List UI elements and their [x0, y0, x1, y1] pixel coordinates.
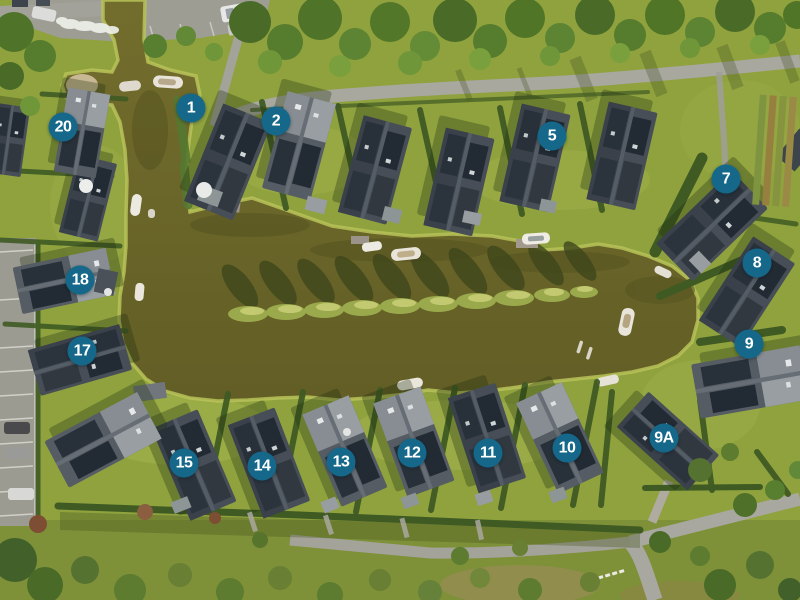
lot-marker-20[interactable]: 20	[49, 113, 78, 142]
lot-marker-14[interactable]: 14	[248, 452, 277, 481]
lot-marker-17[interactable]: 17	[68, 337, 97, 366]
lot-marker-18[interactable]: 18	[66, 266, 95, 295]
lot-marker-7[interactable]: 7	[712, 165, 741, 194]
lot-marker-15[interactable]: 15	[170, 449, 199, 478]
lot-marker-9A[interactable]: 9A	[650, 424, 679, 453]
lot-marker-9[interactable]: 9	[735, 330, 764, 359]
aerial-park-map: 1257899A101112131415171820	[0, 0, 800, 600]
lot-marker-11[interactable]: 11	[474, 439, 503, 468]
lot-marker-2[interactable]: 2	[262, 107, 291, 136]
lot-marker-10[interactable]: 10	[553, 434, 582, 463]
lot-marker-1[interactable]: 1	[177, 94, 206, 123]
lot-marker-13[interactable]: 13	[327, 448, 356, 477]
marker-layer: 1257899A101112131415171820	[0, 0, 800, 600]
lot-marker-5[interactable]: 5	[538, 122, 567, 151]
lot-marker-8[interactable]: 8	[743, 249, 772, 278]
lot-marker-12[interactable]: 12	[398, 439, 427, 468]
